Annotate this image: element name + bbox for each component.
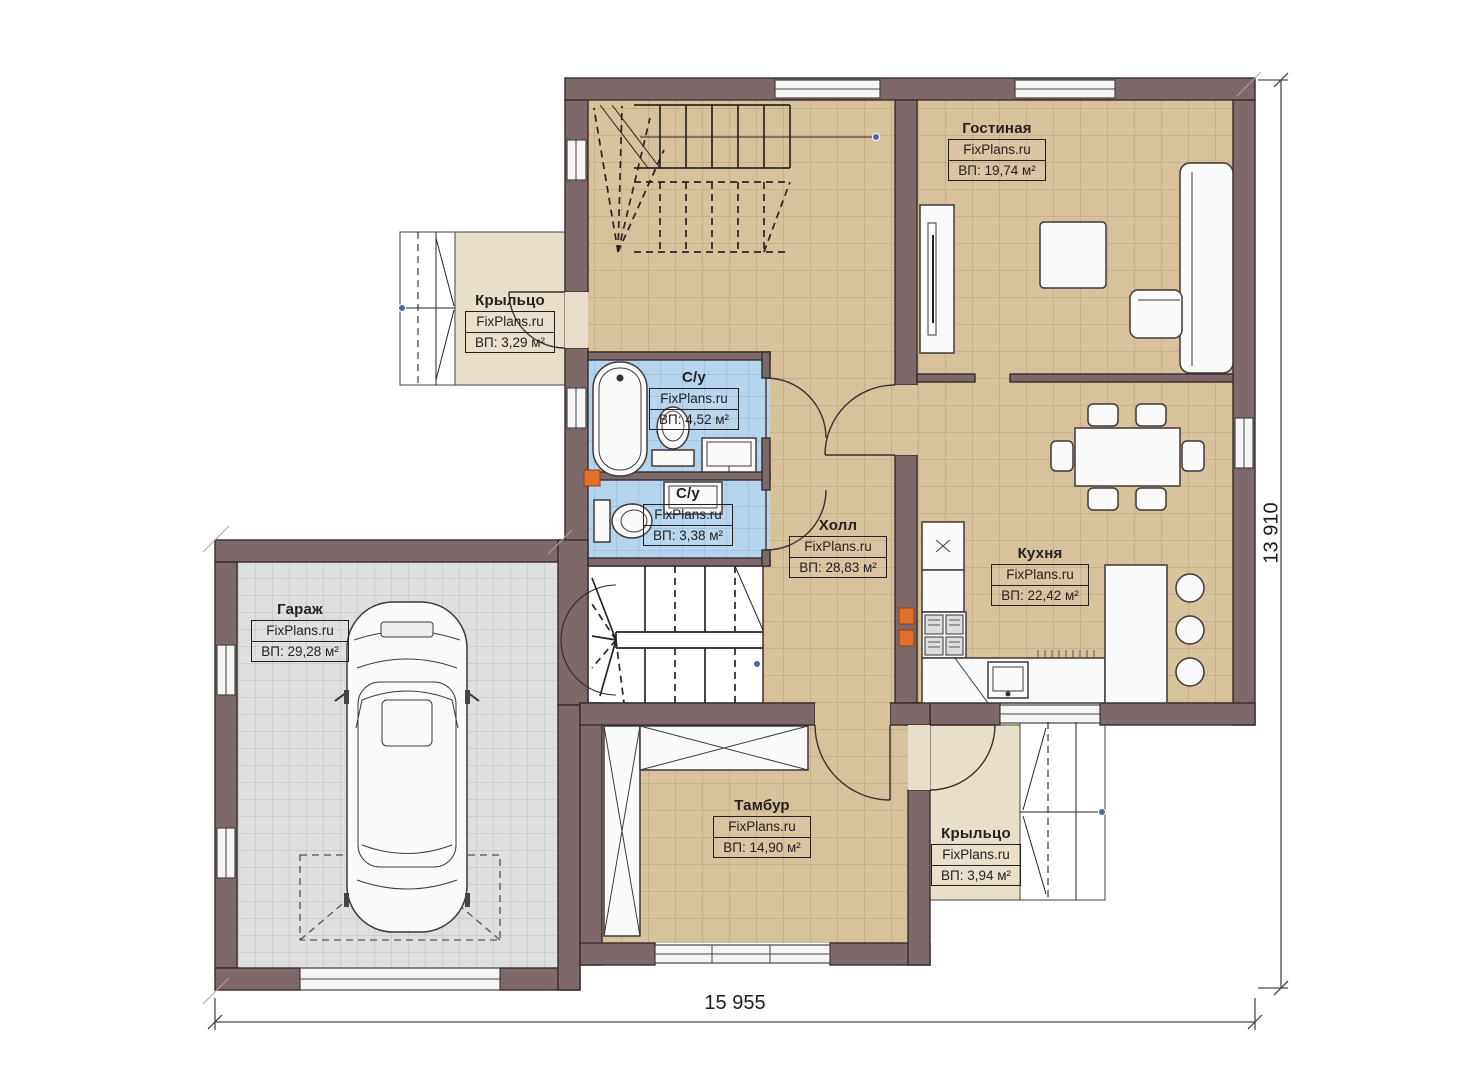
room-label-kitchen: Кухня FixPlans.ru ВП: 22,42 м² (970, 545, 1110, 606)
room-info-box: FixPlans.ru ВП: 3,94 м² (931, 844, 1021, 886)
room-area: ВП: 19,74 м² (949, 161, 1045, 181)
watermark: FixPlans.ru (252, 621, 348, 642)
sofa-chaise (1130, 290, 1182, 338)
counter (922, 570, 964, 612)
room-info-box: FixPlans.ru ВП: 28,83 м² (789, 536, 887, 578)
watermark: FixPlans.ru (644, 505, 732, 526)
room-label-vestibule: Тамбур FixPlans.ru ВП: 14,90 м² (692, 797, 832, 858)
room-info-box: FixPlans.ru ВП: 4,52 м² (649, 388, 739, 430)
watermark: FixPlans.ru (949, 140, 1045, 161)
chair (1088, 404, 1118, 426)
room-name: Тамбур (692, 797, 832, 814)
room-info-box: FixPlans.ru ВП: 19,74 м² (948, 139, 1046, 181)
room-label-living: Гостиная FixPlans.ru ВП: 19,74 м² (927, 120, 1067, 181)
toilet-lower-tank (594, 500, 610, 542)
room-area: ВП: 14,90 м² (714, 838, 810, 858)
chair (1136, 404, 1166, 426)
chair (1088, 488, 1118, 510)
car-sunroof (381, 622, 433, 637)
watermark: FixPlans.ru (992, 565, 1088, 586)
room-info-box: FixPlans.ru ВП: 22,42 м² (991, 564, 1089, 606)
room-name: С/у (624, 369, 764, 386)
radiator-marker (899, 630, 914, 646)
room-label-hall: Холл FixPlans.ru ВП: 28,83 м² (768, 517, 908, 578)
room-label-bath-lower: С/у FixPlans.ru ВП: 3,38 м² (618, 485, 758, 546)
watermark: FixPlans.ru (714, 817, 810, 838)
room-area: ВП: 28,83 м² (790, 558, 886, 578)
stool (1176, 616, 1204, 644)
room-label-porch-top: Крыльцо FixPlans.ru ВП: 3,29 м² (440, 292, 580, 353)
watermark: FixPlans.ru (650, 389, 738, 410)
watermark: FixPlans.ru (466, 312, 554, 333)
chair (1051, 441, 1073, 471)
vestibule-porch-opening (908, 725, 930, 790)
room-name: Кухня (970, 545, 1110, 562)
hall-vestibule-opening (815, 703, 890, 725)
boiler-marker (584, 470, 600, 486)
room-info-box: FixPlans.ru ВП: 3,29 м² (465, 311, 555, 353)
room-area: ВП: 4,52 м² (650, 410, 738, 430)
room-name: Крыльцо (906, 825, 1046, 842)
stool (1176, 658, 1204, 686)
room-name: Гостиная (927, 120, 1067, 137)
room-area: ВП: 3,29 м² (466, 333, 554, 353)
room-info-box: FixPlans.ru ВП: 29,28 м² (251, 620, 349, 662)
room-name: Крыльцо (440, 292, 580, 309)
room-name: Гараж (230, 601, 370, 618)
room-area: ВП: 3,38 м² (644, 526, 732, 546)
watermark: FixPlans.ru (932, 845, 1020, 866)
floor-plan-page: Гостиная FixPlans.ru ВП: 19,74 м² Крыльц… (0, 0, 1473, 1080)
stove (922, 612, 966, 658)
room-name: С/у (618, 485, 758, 502)
room-area: ВП: 3,94 м² (932, 866, 1020, 886)
hall-living-opening (895, 385, 917, 455)
room-name: Холл (768, 517, 908, 534)
chair (1136, 488, 1166, 510)
tv-stand (920, 205, 954, 353)
room-info-box: FixPlans.ru ВП: 3,38 м² (643, 504, 733, 546)
stool (1176, 574, 1204, 602)
sofa-main (1180, 163, 1233, 373)
room-area: ВП: 29,28 м² (252, 642, 348, 662)
room-info-box: FixPlans.ru ВП: 14,90 м² (713, 816, 811, 858)
kitchen-island (1105, 565, 1167, 703)
dining-table (1075, 428, 1180, 486)
chair (1182, 441, 1204, 471)
dimension-right: 13 910 (1261, 502, 1284, 563)
room-label-porch-bottom: Крыльцо FixPlans.ru ВП: 3,94 м² (906, 825, 1046, 886)
watermark: FixPlans.ru (790, 537, 886, 558)
radiator-marker (899, 608, 914, 624)
dimension-bottom: 15 955 (665, 992, 805, 1015)
room-label-bath-upper: С/у FixPlans.ru ВП: 4,52 м² (624, 369, 764, 430)
coffee-table (1040, 222, 1106, 288)
room-area: ВП: 22,42 м² (992, 586, 1088, 606)
room-label-garage: Гараж FixPlans.ru ВП: 29,28 м² (230, 601, 370, 662)
